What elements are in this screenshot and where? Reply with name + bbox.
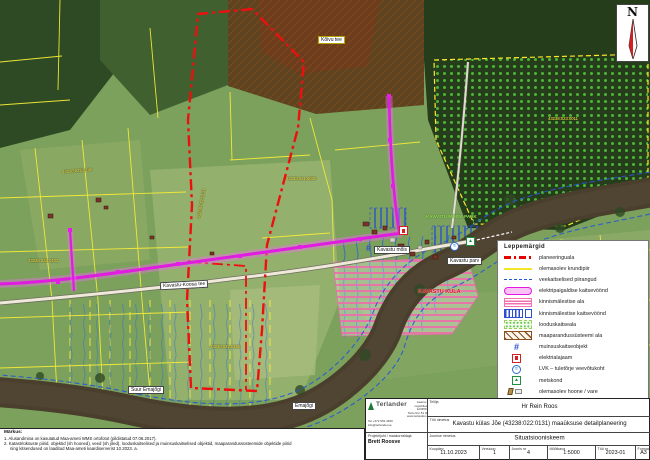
manor-label: Kavastu mõis xyxy=(374,246,410,254)
park-name: KAVASTU MÕISA PARK xyxy=(426,214,477,219)
parcel-code-label: 43238:022:0160 xyxy=(210,344,240,349)
forest-district-icon: ▲ xyxy=(466,237,475,246)
river-small-label: Emajõgi xyxy=(292,402,316,410)
land-improvement-swatch xyxy=(504,331,532,340)
legend-item: olemasolev hoone / vare xyxy=(504,386,644,397)
road-label-text: Kavastu-Koosa tee xyxy=(163,281,206,289)
legend-item: ▲ metskond xyxy=(504,375,644,386)
version-value: 1 xyxy=(480,450,509,456)
legend-label: muinsuskaitseobjekt xyxy=(539,344,588,350)
plot-boundary-swatch xyxy=(504,268,532,270)
legend-item: veekaitselised piirangud xyxy=(504,274,644,285)
contact-line: info@terlander.ee xyxy=(368,424,427,428)
legend-label: maaparandussüsteemi ala xyxy=(539,333,602,339)
company-contact: Tel +372 502 4456 info@terlander.ee xyxy=(366,419,427,427)
legend-item: elektrialajaam xyxy=(504,353,644,364)
monument-zone-swatch2 xyxy=(525,309,532,318)
legend-label: olemasolev hoone / vare xyxy=(539,389,598,395)
company-cell: Terlander Jaama 60 registrikood 12345678… xyxy=(366,399,428,433)
ferry-label-text: Kavastu parv xyxy=(450,258,479,264)
title-block: Terlander Jaama 60 registrikood 12345678… xyxy=(365,398,650,460)
legend-label: olemasolev krundipiir xyxy=(539,266,590,272)
format-cell: Formaat A3 xyxy=(636,446,650,460)
legend-label: metskond xyxy=(539,378,562,384)
legend-box: Leppemärgid planeeringuala olemasolev kr… xyxy=(497,240,649,399)
heritage-object-icon: # xyxy=(364,244,373,253)
address-line: www.terlander.ee xyxy=(407,415,428,419)
legend-item: olemasolev krundipiir xyxy=(504,263,644,274)
power-line-zone-swatch xyxy=(504,287,532,295)
existing-building-icon xyxy=(508,387,526,396)
company-logo-tree-icon xyxy=(368,402,374,410)
drawing-no-cell: Joonis nr 4 xyxy=(510,446,548,460)
notes-box: Märkus: 1. Alusandmina on kasutatud Maa-… xyxy=(0,428,365,460)
substation-icon xyxy=(512,354,521,363)
fire-water-point-icon: ≈ xyxy=(512,365,521,374)
work-no-value: 2023-01 xyxy=(596,450,635,456)
legend-item: # muinsuskaitseobjekt xyxy=(504,342,644,353)
work-no-cell: Töö nr 2023-01 xyxy=(596,446,636,460)
legend-item: kinnismälestise ala xyxy=(504,297,644,308)
date-cell: Kuupäev 11.10.2023 xyxy=(428,446,480,460)
village-name: KAVASTU KÜLA xyxy=(418,289,461,295)
ferry-label: Kavastu parv xyxy=(447,257,482,265)
drawing-cell: Joonise nimetus Situatsiooniskeem xyxy=(428,433,650,446)
client-cell: Tellija Hr Rein Roos xyxy=(428,399,650,417)
version-cell: Versioon 1 xyxy=(480,446,510,460)
small-road-label: Kõivu tee xyxy=(318,36,345,44)
parcel-code-label: 43238:023:0011 xyxy=(548,116,578,121)
legend-label: veekaitselised piirangud xyxy=(539,277,597,283)
format-value: A3 xyxy=(636,450,650,456)
legend-item: planeeringuala xyxy=(504,252,644,263)
legend-label: elektripaigaldise kaitsevöönd xyxy=(539,288,608,294)
note-line: ning kitsendused on laaditud Maa-ameti k… xyxy=(4,446,360,451)
scale-cell: Mõõtkava 1:5000 xyxy=(548,446,596,460)
scale-value: 1:5000 xyxy=(548,450,595,456)
heritage-object-icon: # xyxy=(512,343,521,352)
nature-protection-swatch xyxy=(504,320,532,329)
compass-needle-icon xyxy=(626,19,640,59)
small-road-label-text: Kõivu tee xyxy=(321,37,342,43)
legend-item: kinnismälestise kaitsevöönd xyxy=(504,308,644,319)
water-protection-swatch xyxy=(504,279,532,280)
project-cell: Töö nimetus Kavastu külas Jõe (43238:022… xyxy=(428,417,650,433)
legend-item: maaparandussüsteemi ala xyxy=(504,330,644,341)
legend-label: LVK – tuletõrje veevõtukoht xyxy=(539,366,605,372)
person-cell: Projektijuht / maakorraldaja Brett Roosv… xyxy=(366,433,428,460)
drawing-value: Situatsiooniskeem xyxy=(428,435,650,442)
monument-area-swatch xyxy=(504,298,532,307)
legend-label: planeeringuala xyxy=(539,255,574,261)
date-value: 11.10.2023 xyxy=(428,450,479,456)
company-address: Jaama 60 registrikood 12345678 Tartu lin… xyxy=(407,401,428,419)
legend-label: looduskaitseala xyxy=(539,322,576,328)
north-arrow-box: N xyxy=(616,4,649,62)
north-label: N xyxy=(617,5,648,19)
legend-item: looduskaitseala xyxy=(504,319,644,330)
project-value: Kavastu külas Jõe (43238:022:0131) maaük… xyxy=(428,421,650,427)
monument-zone-swatch xyxy=(504,309,523,318)
client-value: Hr Rein Roos xyxy=(428,404,650,410)
manor-label-text: Kavastu mõis xyxy=(377,247,407,253)
fire-water-point-icon: ≈ xyxy=(450,242,459,251)
plan-sheet: Kavastu-Koosa tee Kavastu mõis Kavastu p… xyxy=(0,0,650,460)
company-name: Terlander xyxy=(376,401,407,409)
forest-district-icon: ▲ xyxy=(512,376,521,385)
legend-item: ≈ LVK – tuletõrje veevõtukoht xyxy=(504,364,644,375)
river-main-label-text: Suur Emajõgi xyxy=(131,387,161,393)
river-small-label-text: Emajõgi xyxy=(295,403,313,409)
legend-label: kinnismälestise kaitsevöönd xyxy=(539,311,606,317)
drawing-no-value: 4 xyxy=(510,450,547,456)
substation-icon xyxy=(399,226,408,235)
river-main-label: Suur Emajõgi xyxy=(128,386,164,394)
parcel-code-label: 43238:021:0030 xyxy=(286,176,316,181)
person-name: Brett Roosve xyxy=(366,438,427,445)
legend-label: kinnismälestise ala xyxy=(539,299,584,305)
parcel-code-label: 43238:022:0102 xyxy=(28,258,58,263)
legend-item: elektripaigaldise kaitsevöönd xyxy=(504,286,644,297)
planning-area-swatch xyxy=(504,256,532,259)
legend-label: elektrialajaam xyxy=(539,355,572,361)
legend-title: Leppemärgid xyxy=(504,244,644,250)
